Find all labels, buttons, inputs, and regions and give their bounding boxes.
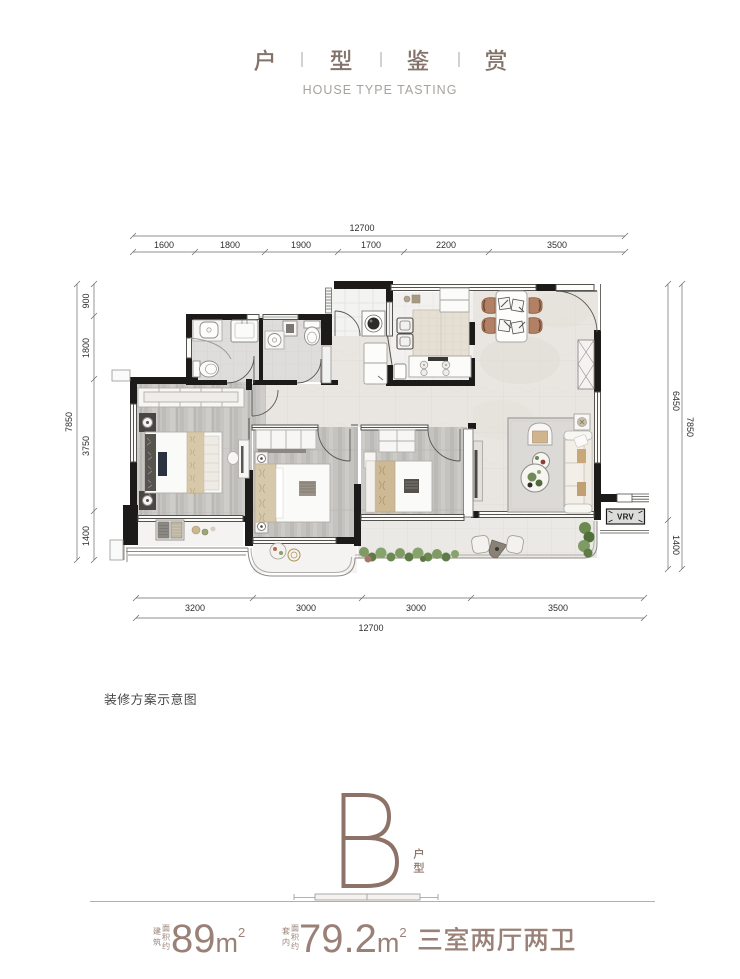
svg-text:3000: 3000 — [406, 603, 426, 613]
svg-text:6450: 6450 — [671, 391, 681, 411]
svg-text:900: 900 — [81, 293, 91, 308]
svg-text:12700: 12700 — [349, 223, 374, 233]
svg-text:HOUSE TYPE TASTING: HOUSE TYPE TASTING — [303, 83, 458, 97]
svg-text:3200: 3200 — [185, 603, 205, 613]
svg-text:1400: 1400 — [81, 526, 91, 546]
svg-text:3500: 3500 — [547, 240, 567, 250]
svg-text:1800: 1800 — [220, 240, 240, 250]
svg-text:3500: 3500 — [548, 603, 568, 613]
svg-text:VRV: VRV — [617, 513, 634, 522]
svg-text:1900: 1900 — [291, 240, 311, 250]
svg-text:7850: 7850 — [685, 417, 695, 437]
svg-text:1600: 1600 — [154, 240, 174, 250]
svg-text:3750: 3750 — [81, 436, 91, 456]
svg-text:2200: 2200 — [436, 240, 456, 250]
svg-text:1800: 1800 — [81, 338, 91, 358]
svg-text:3000: 3000 — [296, 603, 316, 613]
svg-text:7850: 7850 — [64, 412, 74, 432]
svg-text:1400: 1400 — [671, 535, 681, 555]
svg-text:12700: 12700 — [358, 623, 383, 633]
svg-text:1700: 1700 — [361, 240, 381, 250]
